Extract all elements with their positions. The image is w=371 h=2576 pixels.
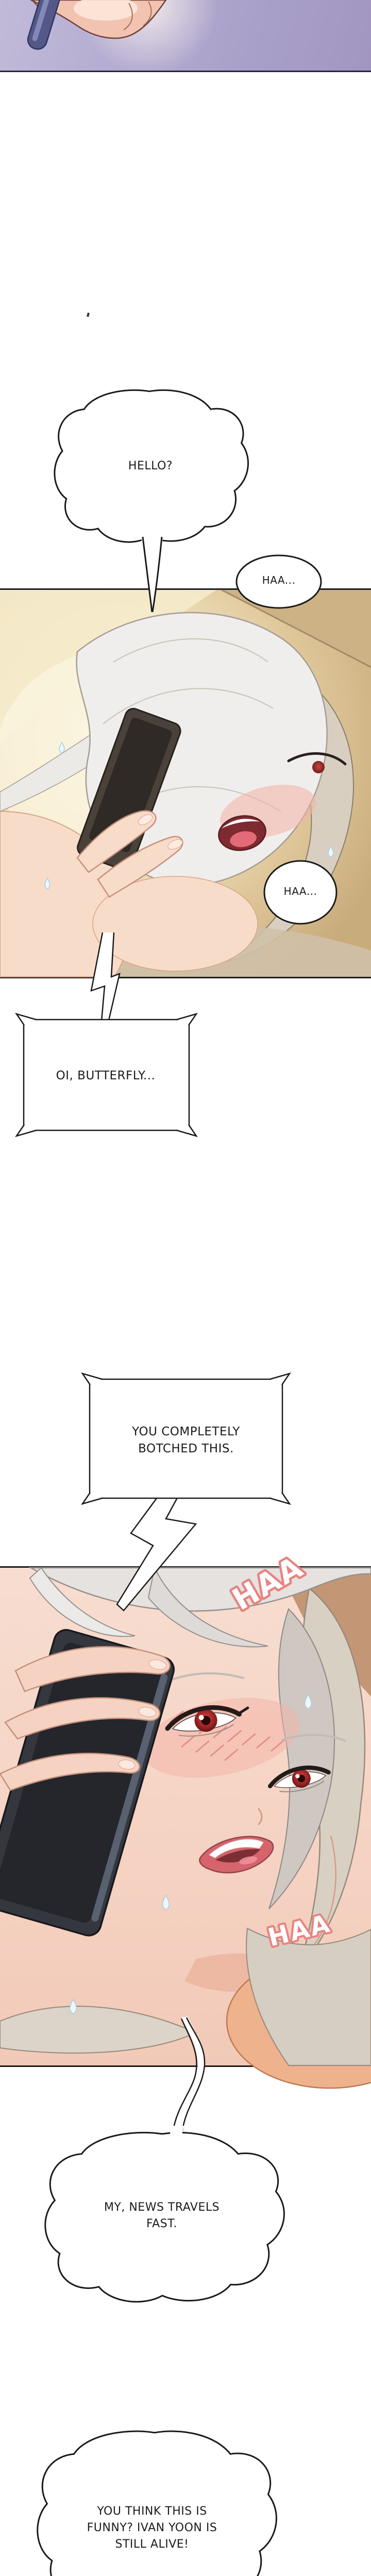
sfx-haa-upper: HAA bbox=[224, 1543, 338, 1636]
panel-hand-with-phone bbox=[0, 0, 371, 72]
botched-line-2: BOTCHED THIS. bbox=[138, 1440, 234, 1458]
oi-butterfly-text: OI, BUTTERFLY... bbox=[31, 1065, 180, 1087]
news-text: MY, NEWS TRAVELS FAST. bbox=[48, 2196, 275, 2236]
botched-line-1: YOU COMPLETELY bbox=[132, 1423, 240, 1440]
bolt-tail-fill bbox=[91, 933, 120, 1023]
oi-line: OI, BUTTERFLY... bbox=[56, 1067, 156, 1084]
hello-line: HELLO? bbox=[128, 458, 173, 474]
news-line-2: FAST. bbox=[146, 2216, 177, 2232]
sfx-haa-upper-text: HAA bbox=[226, 1549, 310, 1617]
alive-line-3: STILL ALIVE! bbox=[115, 2536, 189, 2553]
webtoon-page: HELLO? HAA... HAA... OI, BUTTERFLY... bbox=[0, 0, 371, 2576]
bolt-tail-fill bbox=[117, 1494, 196, 1611]
haa-text-1: HAA... bbox=[240, 571, 317, 589]
closeup-art bbox=[0, 1568, 371, 2065]
alive-line-2: FUNNY? IVAN YOON IS bbox=[87, 2520, 217, 2536]
alive-text: YOU THINK THIS IS FUNNY? IVAN YOON IS ST… bbox=[39, 2500, 265, 2556]
botched-text: YOU COMPLETELY BOTCHED THIS. bbox=[96, 1421, 276, 1460]
phone-voice-box-oi bbox=[10, 927, 206, 1144]
alive-line-1: YOU THINK THIS IS bbox=[97, 2503, 207, 2520]
speech-bubble-hello bbox=[49, 382, 255, 619]
sfx-haa-lower: HAA bbox=[252, 1899, 350, 1960]
hello-text: HELLO? bbox=[99, 456, 202, 476]
sfx-haa-lower-text: HAA bbox=[265, 1909, 333, 1952]
haa-line: HAA... bbox=[262, 573, 296, 588]
haa-text-2: HAA... bbox=[262, 882, 339, 901]
hand-phone-art bbox=[0, 0, 371, 71]
news-line-1: MY, NEWS TRAVELS bbox=[104, 2199, 220, 2216]
news-bubble-tail bbox=[0, 2009, 371, 2138]
panel-face-closeup bbox=[0, 1566, 371, 2067]
stray-ink-mark bbox=[87, 313, 90, 317]
eye-iris bbox=[312, 761, 325, 773]
haa-line: HAA... bbox=[284, 884, 317, 899]
